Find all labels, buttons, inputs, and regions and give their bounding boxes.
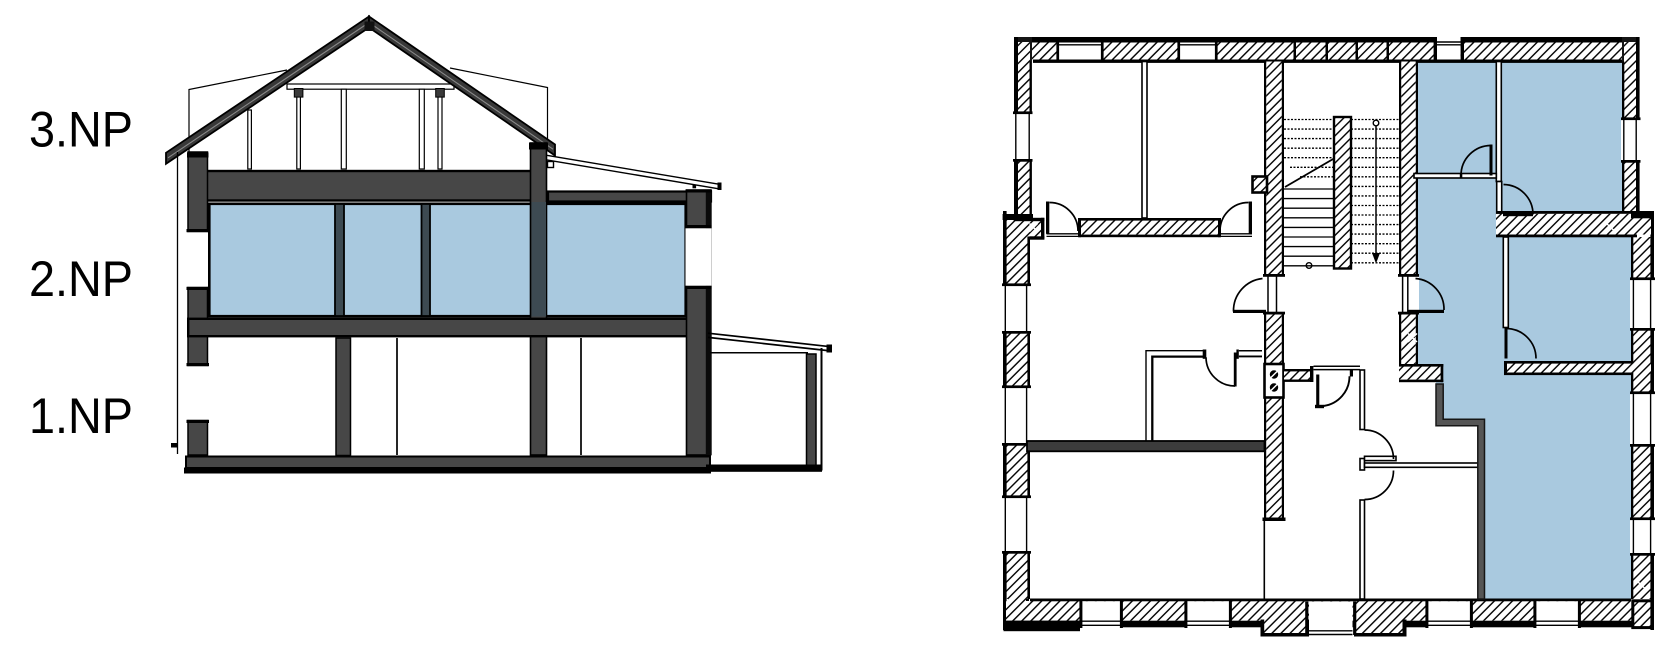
svg-text:3.NP: 3.NP	[29, 102, 133, 158]
svg-text:1.NP: 1.NP	[29, 388, 133, 444]
svg-text:2.NP: 2.NP	[29, 251, 133, 307]
